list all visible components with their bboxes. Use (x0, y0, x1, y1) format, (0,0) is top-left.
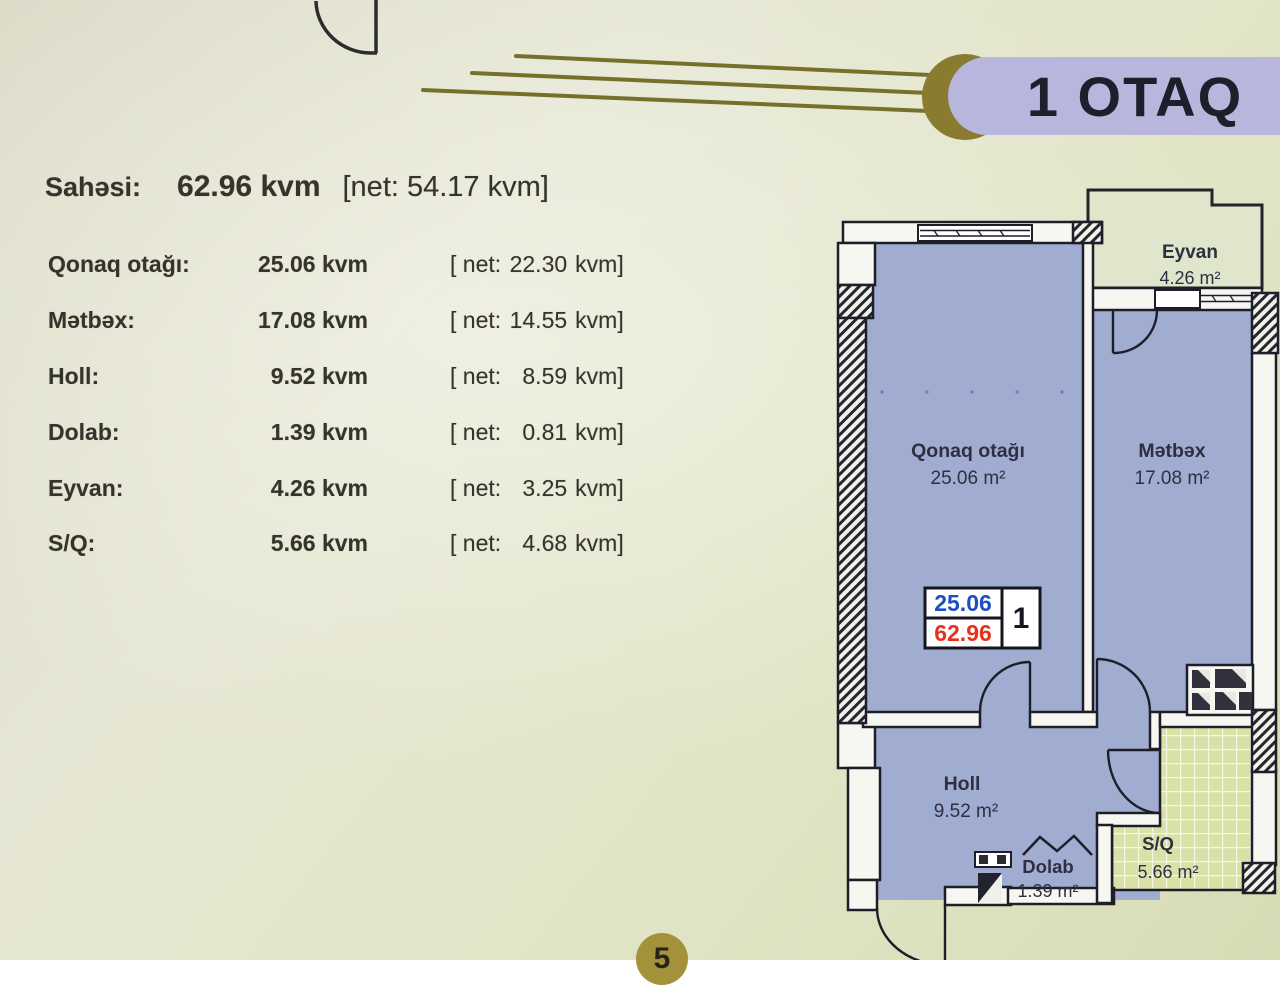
arc-lines (316, 0, 377, 53)
page-number-badge: 5 (636, 933, 688, 985)
room-label-kitchen: Mətbəx (1138, 440, 1205, 462)
room-fill-kitchen (1093, 308, 1252, 712)
room-label-wetroom: S/Q (1142, 833, 1174, 854)
net-value: 22.30 (501, 251, 567, 278)
unit-info-badge: 25.06 62.96 1 (925, 588, 1040, 648)
net-unit: kvm] (575, 475, 624, 502)
row-area: 5.66 kvm (253, 530, 368, 557)
net-value: 14.55 (501, 307, 567, 334)
table-row: S/Q: 5.66 kvm [ net:4.68kvm] (48, 516, 624, 572)
room-area-wetroom: 5.66 m² (1137, 862, 1198, 882)
net-value: 4.68 (501, 530, 567, 557)
row-net: [ net:4.68kvm] (450, 530, 624, 557)
row-net: [ net:3.25kvm] (450, 475, 624, 502)
net-value: 0.81 (501, 419, 567, 446)
row-net: [ net:22.30kvm] (450, 251, 624, 278)
page-number: 5 (654, 942, 671, 976)
badge-room-area: 25.06 (934, 590, 992, 616)
summary-total-value: 62.96 kvm (177, 170, 320, 204)
row-label: Eyvan: (48, 475, 253, 502)
gold-line-group (423, 56, 952, 112)
row-net: [ net:14.55kvm] (450, 307, 624, 334)
net-prefix: [ net: (450, 419, 501, 446)
table-row: Holl: 9.52 kvm [ net:8.59kvm] (48, 349, 624, 405)
row-label: Holl: (48, 363, 253, 390)
floor-plan: 25.06 62.96 1 Eyvan 4.26 m² Qonaq otağı … (830, 175, 1280, 960)
net-prefix: [ net: (450, 307, 501, 334)
row-net: [ net:0.81kvm] (450, 419, 624, 446)
net-unit: kvm] (575, 307, 624, 334)
row-area: 17.08 kvm (253, 307, 368, 334)
row-area: 4.26 kvm (253, 475, 368, 502)
room-label-living: Qonaq otağı (911, 440, 1025, 462)
net-prefix: [ net: (450, 363, 501, 390)
cropped-plan-arc (0, 0, 400, 60)
row-area: 9.52 kvm (253, 363, 368, 390)
table-row: Mətbəx: 17.08 kvm [ net:14.55kvm] (48, 293, 624, 349)
net-unit: kvm] (575, 419, 624, 446)
row-net: [ net:8.59kvm] (450, 363, 624, 390)
room-label-balcony: Eyvan (1162, 242, 1218, 263)
room-area-closet: 1.39 m² (1017, 881, 1078, 901)
row-area: 25.06 kvm (253, 251, 368, 278)
net-value: 3.25 (501, 475, 567, 502)
room-count-label: 1 OTAQ (1027, 64, 1243, 129)
row-label: Dolab: (48, 419, 253, 446)
room-area-balcony: 4.26 m² (1159, 268, 1220, 288)
net-unit: kvm] (575, 251, 624, 278)
net-prefix: [ net: (450, 530, 501, 557)
net-prefix: [ net: (450, 251, 501, 278)
table-row: Qonaq otağı: 25.06 kvm [ net:22.30kvm] (48, 237, 624, 293)
room-count-banner: 1 OTAQ (948, 57, 1280, 135)
summary-label: Sahəsi: (45, 172, 141, 203)
net-value: 8.59 (501, 363, 567, 390)
brochure-page: 1 OTAQ Sahəsi: 62.96 kvm [net: 54.17 kvm… (0, 0, 1280, 960)
room-label-hall: Holl (944, 773, 981, 795)
room-label-closet: Dolab (1022, 856, 1073, 877)
row-label: Mətbəx: (48, 307, 253, 334)
room-area-kitchen: 17.08 m² (1135, 468, 1210, 489)
summary-net-value: [net: 54.17 kvm] (343, 171, 549, 204)
net-unit: kvm] (575, 530, 624, 557)
badge-total-area: 62.96 (934, 620, 992, 646)
row-label: S/Q: (48, 530, 253, 557)
badge-unit-number: 1 (1013, 602, 1030, 635)
room-area-living: 25.06 m² (931, 468, 1006, 489)
room-area-table: Qonaq otağı: 25.06 kvm [ net:22.30kvm] M… (48, 237, 624, 572)
total-area-summary: Sahəsi: 62.96 kvm [net: 54.17 kvm] (45, 170, 549, 204)
row-label: Qonaq otağı: (48, 251, 253, 278)
net-unit: kvm] (575, 363, 624, 390)
table-row: Dolab: 1.39 kvm [ net:0.81kvm] (48, 404, 624, 460)
net-prefix: [ net: (450, 475, 501, 502)
table-row: Eyvan: 4.26 kvm [ net:3.25kvm] (48, 460, 624, 516)
row-area: 1.39 kvm (253, 419, 368, 446)
room-area-hall: 9.52 m² (934, 801, 998, 822)
